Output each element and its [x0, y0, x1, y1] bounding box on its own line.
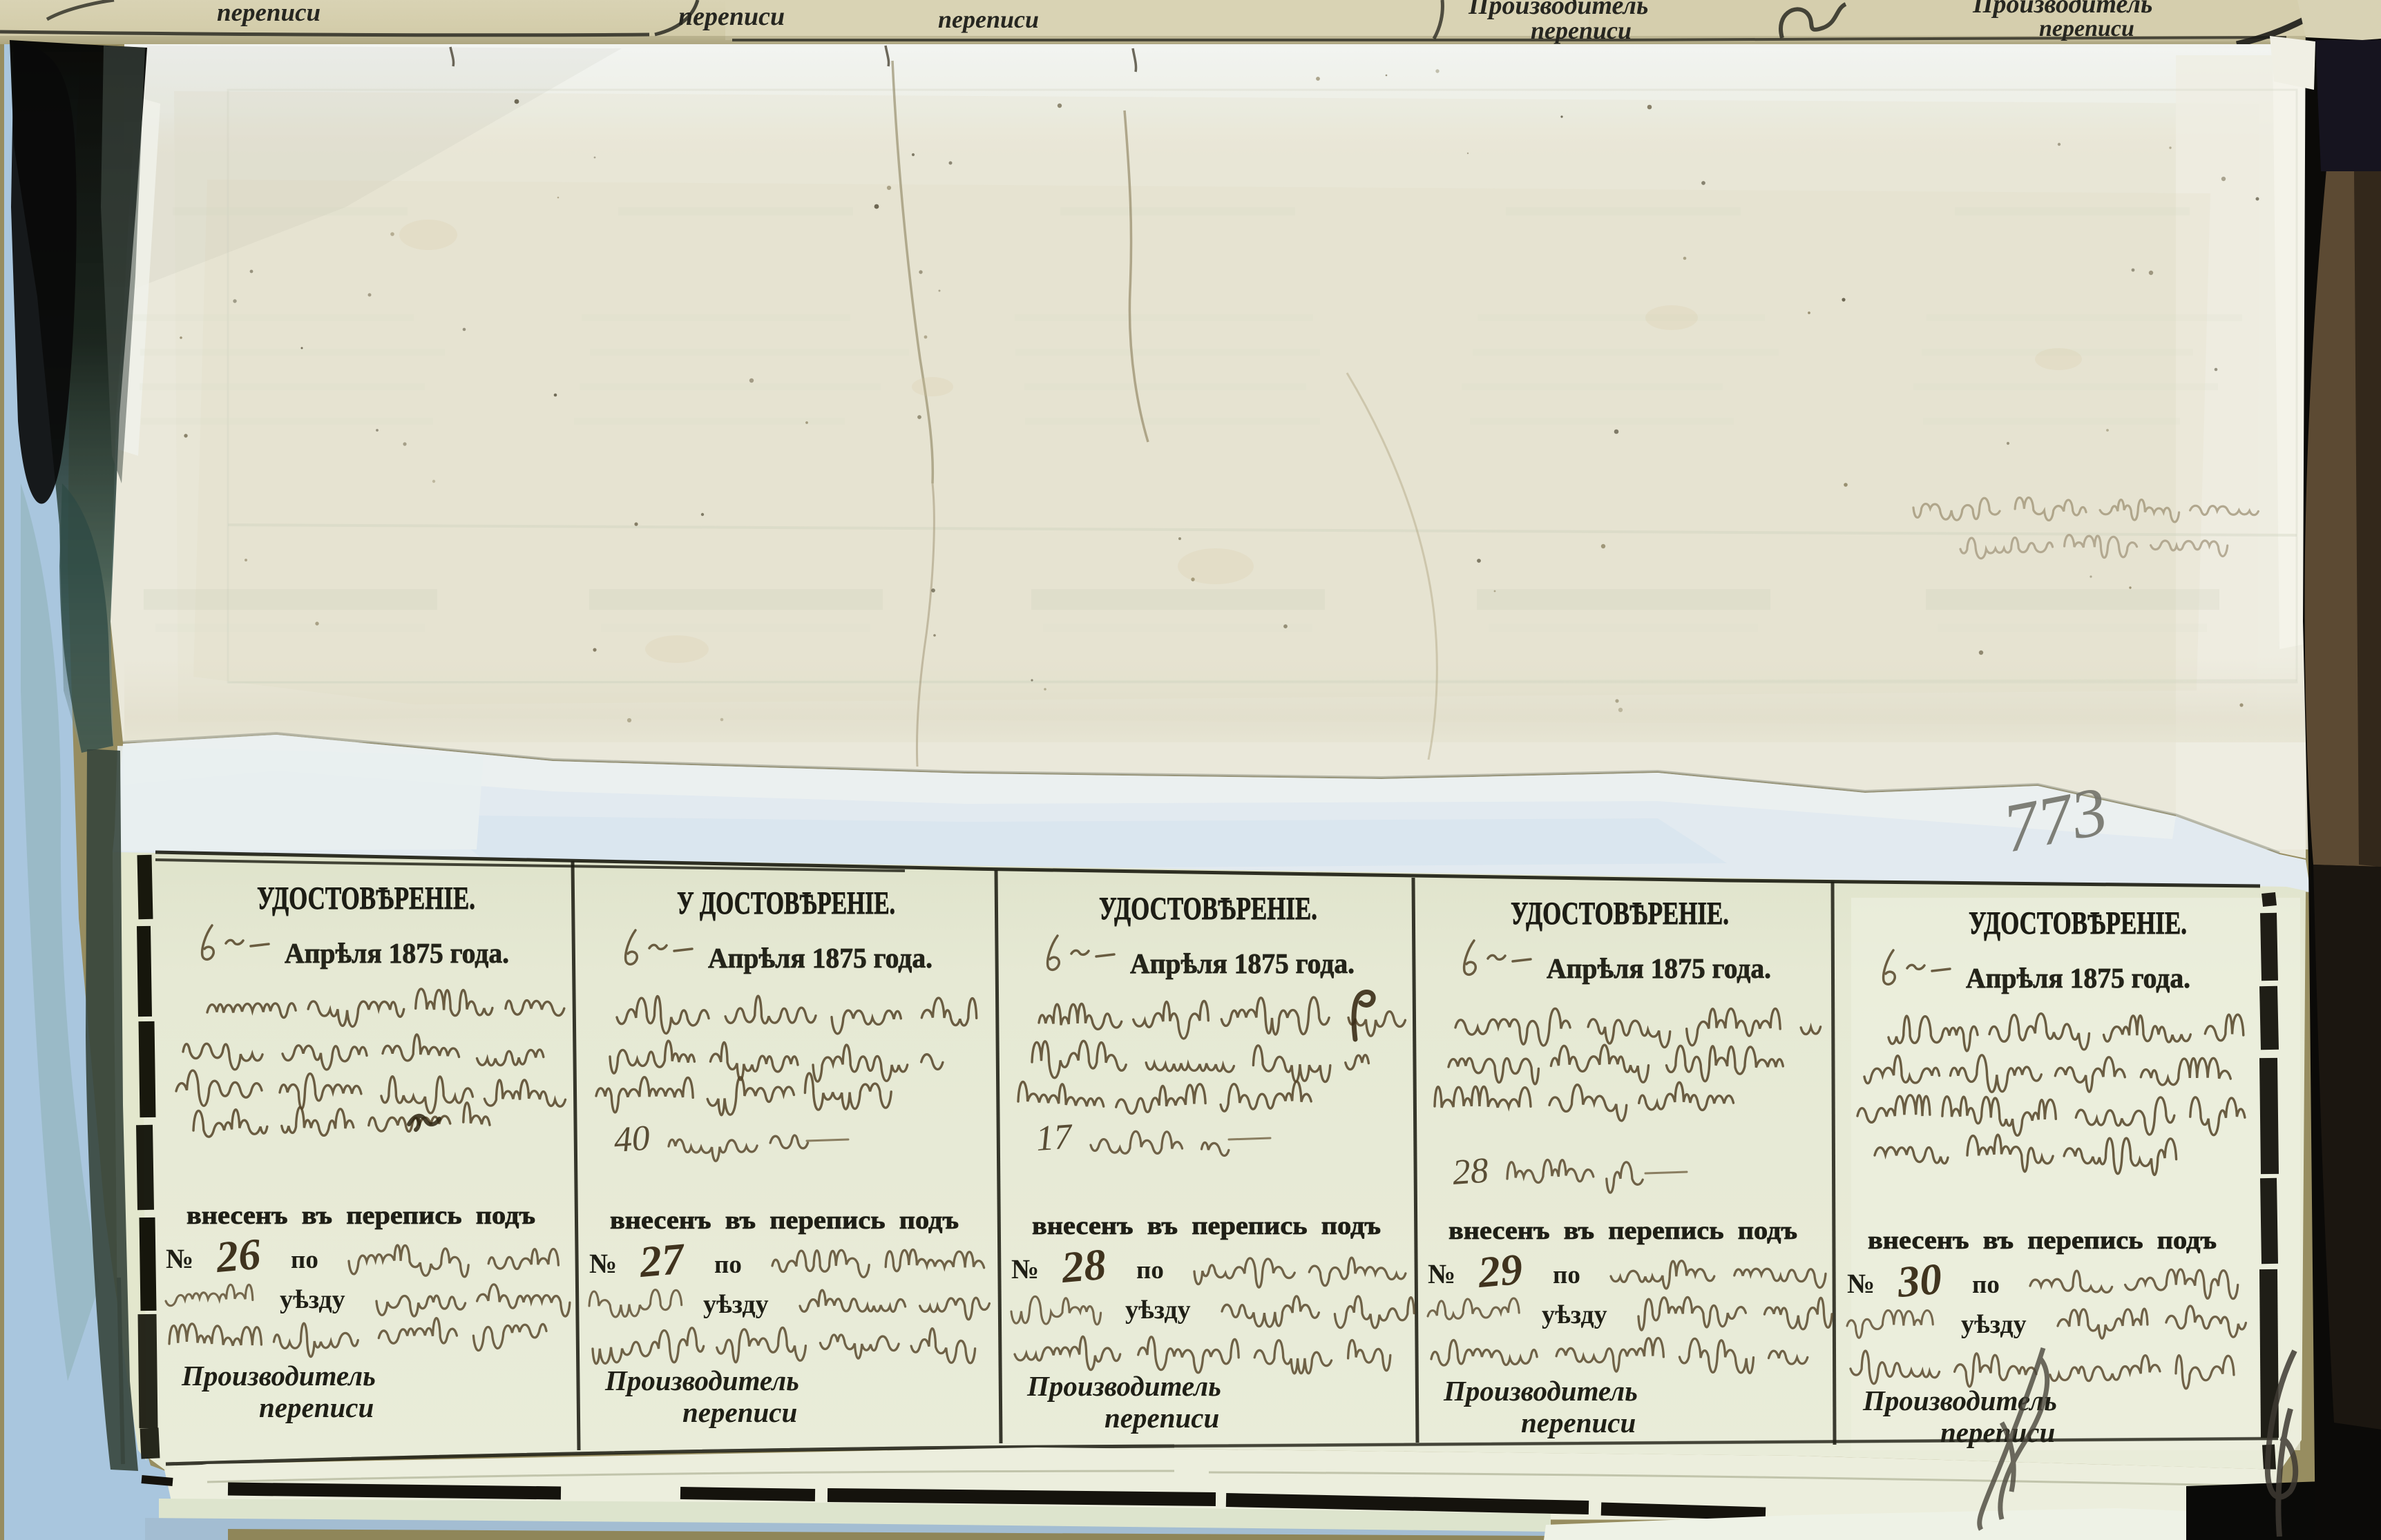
svg-text:№: № — [166, 1243, 193, 1274]
svg-text:уѣзду: уѣзду — [1542, 1300, 1607, 1329]
svg-text:40: 40 — [613, 1118, 651, 1159]
svg-text:внесенъ въ перепись подъ: внесенъ въ перепись подъ — [610, 1206, 959, 1235]
svg-text:28: 28 — [1059, 1240, 1108, 1292]
svg-text:№: № — [1428, 1258, 1455, 1289]
svg-text:переписи: переписи — [938, 6, 1039, 33]
svg-text:УДОСТОВѢРЕНІЕ.: УДОСТОВѢРЕНІЕ. — [1511, 896, 1729, 932]
svg-text:переписи: переписи — [1105, 1402, 1219, 1434]
svg-text:УДОСТОВѢРЕНІЕ.: УДОСТОВѢРЕНІЕ. — [1099, 891, 1317, 927]
svg-text:Производитель: Производитель — [1443, 1375, 1638, 1407]
svg-text:17: 17 — [1035, 1117, 1075, 1159]
svg-text:внесенъ въ перепись подъ: внесенъ въ перепись подъ — [1448, 1217, 1797, 1245]
svg-text:по: по — [714, 1251, 742, 1279]
svg-text:переписи: переписи — [682, 1396, 797, 1428]
svg-text:уѣзду: уѣзду — [280, 1285, 345, 1314]
svg-text:Производитель: Производитель — [181, 1360, 376, 1392]
svg-text:переписи: переписи — [678, 2, 785, 31]
svg-text:внесенъ въ перепись подъ: внесенъ въ перепись подъ — [187, 1202, 535, 1230]
svg-text:Апрѣля 1875 года.: Апрѣля 1875 года. — [1966, 962, 2190, 994]
svg-text:уѣзду: уѣзду — [1125, 1296, 1191, 1325]
svg-text:Апрѣля 1875 года.: Апрѣля 1875 года. — [1130, 947, 1355, 979]
svg-text:УДОСТОВѢРЕНІЕ.: УДОСТОВѢРЕНІЕ. — [1969, 905, 2187, 941]
svg-text:№: № — [1011, 1253, 1039, 1284]
svg-text:по: по — [1553, 1261, 1580, 1289]
svg-text:переписи: переписи — [259, 1392, 374, 1423]
svg-text:№: № — [1847, 1268, 1875, 1299]
svg-text:Апрѣля 1875 года.: Апрѣля 1875 года. — [285, 937, 509, 969]
svg-text:внесенъ въ перепись подъ: внесенъ въ перепись подъ — [1032, 1212, 1381, 1240]
svg-text:Производитель: Производитель — [1026, 1370, 1221, 1402]
svg-text:28: 28 — [1451, 1151, 1490, 1192]
svg-text:Производитель: Производитель — [604, 1365, 799, 1396]
svg-text:по: по — [291, 1246, 318, 1274]
svg-text:27: 27 — [637, 1233, 688, 1287]
svg-text:по: по — [1972, 1271, 2000, 1299]
svg-text:26: 26 — [213, 1229, 262, 1282]
svg-text:по: по — [1136, 1256, 1164, 1284]
svg-text:У ДОСТОВѢРЕНІЕ.: У ДОСТОВѢРЕНІЕ. — [677, 885, 895, 921]
svg-text:29: 29 — [1475, 1244, 1524, 1297]
svg-text:Апрѣля 1875 года.: Апрѣля 1875 года. — [1547, 952, 1771, 984]
svg-text:уѣзду: уѣзду — [703, 1290, 769, 1319]
svg-text:внесенъ въ перепись подъ: внесенъ въ перепись подъ — [1868, 1226, 2217, 1255]
svg-text:переписи: переписи — [1521, 1407, 1636, 1438]
svg-text:уѣзду: уѣзду — [1961, 1310, 2027, 1339]
svg-text:30: 30 — [1895, 1254, 1944, 1307]
svg-text:Апрѣля 1875 года.: Апрѣля 1875 года. — [708, 942, 933, 974]
svg-text:переписи: переписи — [2039, 16, 2134, 41]
svg-text:УДОСТОВѢРЕНІЕ.: УДОСТОВѢРЕНІЕ. — [257, 880, 475, 916]
svg-text:переписи: переписи — [1531, 17, 1632, 44]
svg-text:№: № — [589, 1248, 617, 1279]
svg-text:переписи: переписи — [217, 0, 321, 27]
